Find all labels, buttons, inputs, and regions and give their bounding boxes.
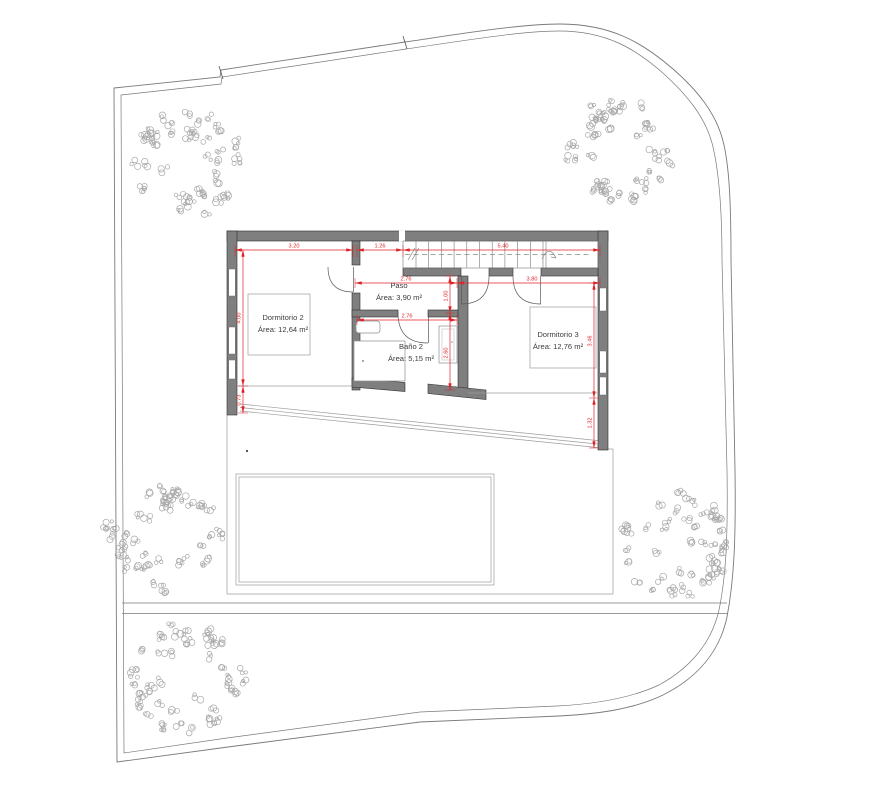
wall-central (458, 276, 468, 390)
site-floor-plan-drawing: 3.20 1.26 5.40 2.76 3.80 2.76 4.00 0.73 … (0, 0, 879, 785)
pool-outer (236, 474, 494, 585)
room-name: Dormitorio 2 (262, 313, 303, 322)
dim-text: 4.00 (237, 313, 243, 324)
wall-left (227, 231, 237, 415)
dim-text: 3.80 (527, 277, 538, 283)
site-boundary-inner (121, 31, 727, 753)
window-inset (600, 377, 607, 395)
dim-text: 2.60 (444, 348, 450, 359)
wall-under-stairs-a (403, 268, 461, 276)
dim-text: 2.76 (402, 314, 413, 320)
floor-lines (237, 386, 598, 393)
wall-right (598, 231, 608, 450)
sink (356, 321, 380, 333)
boundary-stake-ticks (219, 36, 407, 79)
room-area: Área: 12,76 m² (533, 342, 584, 351)
room-area: Área: 3,90 m² (376, 293, 422, 302)
tree (101, 483, 225, 595)
tree (130, 109, 242, 217)
room-name: Dormitorio 3 (537, 330, 578, 339)
tree (564, 99, 675, 205)
window-inset (229, 327, 236, 354)
dim-text: 3.46 (588, 336, 594, 347)
dim-text: 1.26 (375, 244, 386, 250)
fixture-dot (451, 341, 453, 343)
pool-inner (239, 477, 491, 582)
dim-text: 1.00 (444, 291, 450, 302)
room-name: Baño 2 (399, 342, 423, 351)
room-labels: Dormitorio 2 Área: 12,64 m² Paso Área: 3… (258, 281, 584, 363)
terrace-outline (227, 415, 613, 594)
window-inset (600, 288, 607, 311)
window-inset (229, 360, 236, 379)
dim-text: 3.20 (289, 244, 300, 250)
path-band-lines (122, 603, 728, 614)
wall-top-gap (399, 231, 405, 242)
room-area: Área: 12,64 m² (258, 325, 309, 334)
room-floor-edges (237, 386, 598, 393)
wall-under-stairs-c (541, 268, 598, 276)
dim-text: 0.73 (237, 395, 243, 406)
wall-bano-top-a (352, 310, 398, 317)
tree (619, 488, 729, 598)
wall-under-stairs-b (489, 268, 513, 276)
dim-text: 5.40 (498, 244, 509, 250)
terrace-edge-diagonals (240, 404, 602, 448)
window-inset (229, 269, 236, 296)
wall-bottom-slab-b (428, 384, 486, 400)
building-walls (227, 231, 608, 450)
window-inset (600, 351, 607, 373)
survey-point-dot (246, 450, 248, 452)
wall-top (227, 231, 608, 241)
tree (127, 622, 249, 736)
dim-text: 1.32 (588, 418, 594, 429)
shower-drain-dot (362, 360, 364, 362)
garden-trees (101, 99, 729, 736)
room-area: Área: 5,15 m² (388, 354, 434, 363)
room-name: Paso (390, 281, 407, 290)
stair-direction-arrow (542, 251, 556, 259)
door-dormitorio2 (328, 267, 354, 292)
wall-bano-top-b (428, 310, 460, 317)
terrace (227, 404, 613, 594)
